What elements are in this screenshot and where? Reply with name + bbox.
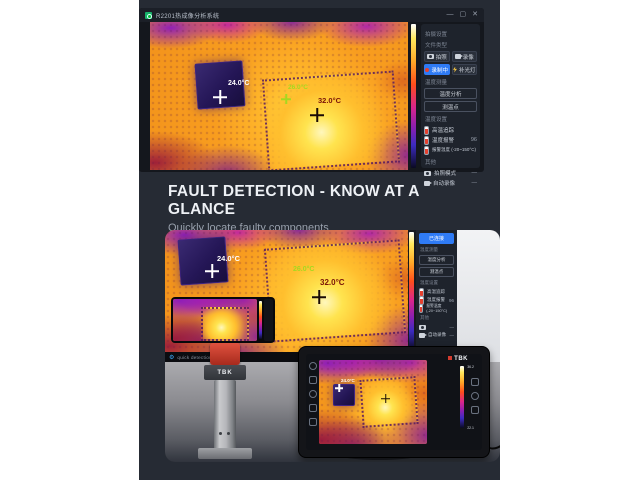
thermal-viewport[interactable]: 24.0°C 26.0°C 32.0°C bbox=[150, 22, 408, 170]
minimize-icon[interactable]: — bbox=[447, 8, 454, 22]
alarm-range-label: 报警温度 (-20~150°C) bbox=[432, 147, 476, 153]
camera-icon bbox=[419, 325, 426, 330]
product-photo-card: 24.0°C 26.0°C 32.0°C 已连接 温度测量 温度分析 测温点 温… bbox=[165, 230, 500, 462]
measure-point-label: 测温点 bbox=[442, 103, 459, 111]
tablet-device: 24.0°C TBK 36.2 22.1 bbox=[298, 346, 490, 458]
auto-record-toggle[interactable]: — bbox=[450, 333, 455, 338]
temp-analysis-label: 温度分析 bbox=[439, 90, 461, 98]
gear-icon: ⚙ bbox=[169, 354, 174, 361]
capture-mode-row[interactable]: 拍照模式— bbox=[424, 168, 477, 178]
section-temp-label: 温度设置 bbox=[420, 280, 453, 286]
shutter-icon bbox=[309, 390, 317, 398]
section-other-label: 其他 bbox=[420, 315, 453, 321]
record-button[interactable]: 录制中 bbox=[424, 64, 450, 75]
hot-chip-outline bbox=[264, 239, 406, 342]
section-capture-label: 拍摄设置 bbox=[425, 30, 476, 38]
connected-button[interactable]: 已连接 bbox=[419, 233, 454, 244]
temp-label-center: 26.0°C bbox=[293, 266, 314, 273]
photo-button-label: 拍照 bbox=[436, 53, 447, 61]
measure-point-button[interactable]: 测温点 bbox=[419, 267, 454, 277]
camera-icon bbox=[424, 171, 431, 176]
capture-mode-toggle[interactable]: — bbox=[450, 325, 455, 330]
tablet-left-icon-column bbox=[306, 354, 319, 450]
headline-title: FAULT DETECTION - KNOW AT A GLANCE bbox=[168, 183, 488, 219]
thermometer-icon bbox=[424, 126, 429, 135]
window-controls: — ▢ ✕ bbox=[447, 8, 485, 22]
section-measure-label: 温度测量 bbox=[420, 247, 453, 253]
close-icon[interactable]: ✕ bbox=[472, 8, 478, 22]
tablet-thermal-view: 24.0°C bbox=[319, 360, 427, 444]
stand-pole bbox=[214, 380, 236, 450]
high-temp-row[interactable]: 高温追踪 bbox=[419, 288, 454, 296]
section-file-label: 文件类型 bbox=[425, 41, 476, 49]
temp-label-left: 24.0°C bbox=[217, 254, 240, 263]
photo-backdrop bbox=[457, 230, 500, 362]
pip-palette-bar bbox=[259, 301, 262, 339]
temp-alarm-value: 96 bbox=[471, 137, 477, 143]
alarm-range-row[interactable]: 报警温度 (-20~150°C) bbox=[424, 145, 477, 155]
video-icon bbox=[419, 333, 425, 338]
settings-icon bbox=[471, 378, 479, 386]
record-button-label: 录制中 bbox=[431, 66, 448, 74]
palette-min-label: 22.1 bbox=[467, 426, 474, 430]
temp-analysis-button[interactable]: 温度分析 bbox=[419, 255, 454, 265]
gallery-icon bbox=[309, 404, 317, 412]
thermal-palette-bar bbox=[411, 24, 416, 168]
screw-dot bbox=[219, 432, 222, 435]
crosshair bbox=[335, 384, 343, 392]
video-button-label: 录像 bbox=[463, 53, 474, 61]
thermometer-icon bbox=[424, 136, 429, 145]
record-dot-icon bbox=[425, 68, 429, 72]
pip-side-bezel bbox=[264, 299, 273, 341]
temp-analysis-label: 温度分析 bbox=[428, 257, 446, 263]
thermal-palette-bar bbox=[409, 232, 414, 350]
temp-alarm-label: 温度报警 bbox=[432, 136, 454, 144]
auto-record-row[interactable]: 自动录像— bbox=[419, 331, 454, 339]
crosshair-left bbox=[205, 264, 219, 278]
tablet-brand-logo: TBK bbox=[448, 356, 468, 362]
crosshair-center bbox=[281, 94, 291, 104]
maximize-icon[interactable]: ▢ bbox=[460, 8, 467, 22]
capture-mode-row[interactable]: — bbox=[419, 323, 454, 331]
folder-icon bbox=[309, 418, 317, 426]
pip-thermal-mini bbox=[173, 299, 257, 341]
alarm-range-row[interactable]: 报警温度 (-20~150°C) bbox=[419, 304, 454, 312]
record-icon bbox=[471, 392, 479, 400]
stand-base bbox=[198, 448, 252, 459]
title-bar: R2201热成像分析系统 — ▢ ✕ bbox=[139, 8, 484, 22]
dark-background-strip: R2201热成像分析系统 — ▢ ✕ 24.0°C 26.0°C 32.0°C bbox=[139, 0, 500, 480]
alarm-range-label: 报警温度 (-20~150°C) bbox=[426, 304, 454, 313]
tablet-right-area: TBK 36.2 22.1 bbox=[427, 354, 482, 450]
video-button[interactable]: 录像 bbox=[452, 51, 478, 62]
temp-label-left: 24.0°C bbox=[228, 80, 249, 87]
crosshair-left bbox=[213, 90, 227, 104]
pip-device-view bbox=[171, 297, 275, 343]
capture-mode-toggle[interactable]: — bbox=[472, 170, 478, 176]
thermal-camera-head bbox=[210, 343, 240, 365]
screen-caption: quick detection bbox=[177, 355, 212, 360]
camera-icon bbox=[427, 54, 434, 59]
video-icon bbox=[455, 54, 461, 59]
temp-label-hot: 32.0°C bbox=[320, 278, 345, 287]
temp-alarm-value: 96 bbox=[449, 298, 454, 303]
tablet-screen: 24.0°C TBK 36.2 22.1 bbox=[306, 354, 482, 450]
temp-alarm-label: 温度报警 bbox=[427, 297, 445, 303]
photo-button[interactable]: 拍照 bbox=[424, 51, 450, 62]
high-temp-label: 高温追踪 bbox=[427, 289, 445, 295]
high-temp-row[interactable]: 高温追踪 bbox=[424, 125, 477, 135]
thermometer-icon bbox=[419, 304, 423, 313]
page: R2201热成像分析系统 — ▢ ✕ 24.0°C 26.0°C 32.0°C bbox=[0, 0, 640, 480]
screw-dot bbox=[227, 432, 230, 435]
flash-icon bbox=[453, 67, 457, 73]
stand-brand-plate: TBK bbox=[204, 365, 246, 380]
connected-label: 已连接 bbox=[429, 235, 444, 242]
thermometer-icon bbox=[424, 146, 429, 155]
tablet-palette-bar bbox=[460, 366, 464, 428]
hot-chip-outline bbox=[262, 71, 400, 170]
headline-block: FAULT DETECTION - KNOW AT A GLANCE Quick… bbox=[168, 183, 488, 234]
menu-icon bbox=[471, 406, 479, 414]
section-measure-label: 温度测量 bbox=[425, 78, 476, 86]
temp-label: 24.0°C bbox=[341, 378, 355, 383]
temp-label-hot: 32.0°C bbox=[318, 96, 341, 105]
section-other-label: 其他 bbox=[425, 158, 476, 166]
temp-label-center: 26.0°C bbox=[288, 84, 308, 91]
palette-max-label: 36.2 bbox=[467, 365, 474, 369]
crosshair-hot bbox=[310, 108, 324, 122]
section-temp-label: 温度设置 bbox=[425, 115, 476, 123]
crosshair-hot bbox=[312, 290, 326, 304]
auto-record-label: 自动录像 bbox=[428, 332, 446, 338]
hot-chip-outline bbox=[201, 307, 249, 341]
app-window-top: R2201热成像分析系统 — ▢ ✕ 24.0°C 26.0°C 32.0°C bbox=[139, 8, 484, 172]
light-button[interactable]: 补光灯 bbox=[452, 64, 478, 75]
measure-point-label: 测温点 bbox=[430, 269, 444, 275]
stand-brand-text: TBK bbox=[217, 370, 232, 376]
temp-analysis-button[interactable]: 温度分析 bbox=[424, 88, 477, 99]
control-sidebar: 拍摄设置 文件类型 拍照 录像 录制中 补光灯 温度测量 温度分析 测温点 温度… bbox=[421, 24, 480, 168]
capture-mode-label: 拍照模式 bbox=[434, 169, 456, 177]
gear-icon bbox=[309, 362, 317, 370]
high-temp-label: 高温追踪 bbox=[432, 126, 454, 134]
temp-alarm-row[interactable]: 温度报警96 bbox=[424, 135, 477, 145]
crosshair-hot bbox=[381, 394, 390, 403]
light-button-label: 补光灯 bbox=[459, 66, 476, 74]
measure-point-button[interactable]: 测温点 bbox=[424, 101, 477, 112]
warning-icon bbox=[309, 376, 317, 384]
app-logo-icon bbox=[145, 12, 152, 19]
window-title: R2201热成像分析系统 bbox=[156, 11, 219, 20]
control-sidebar-zoomed: 已连接 温度测量 温度分析 测温点 温度设置 高温追踪 温度报警96 报警温度 … bbox=[416, 230, 457, 352]
